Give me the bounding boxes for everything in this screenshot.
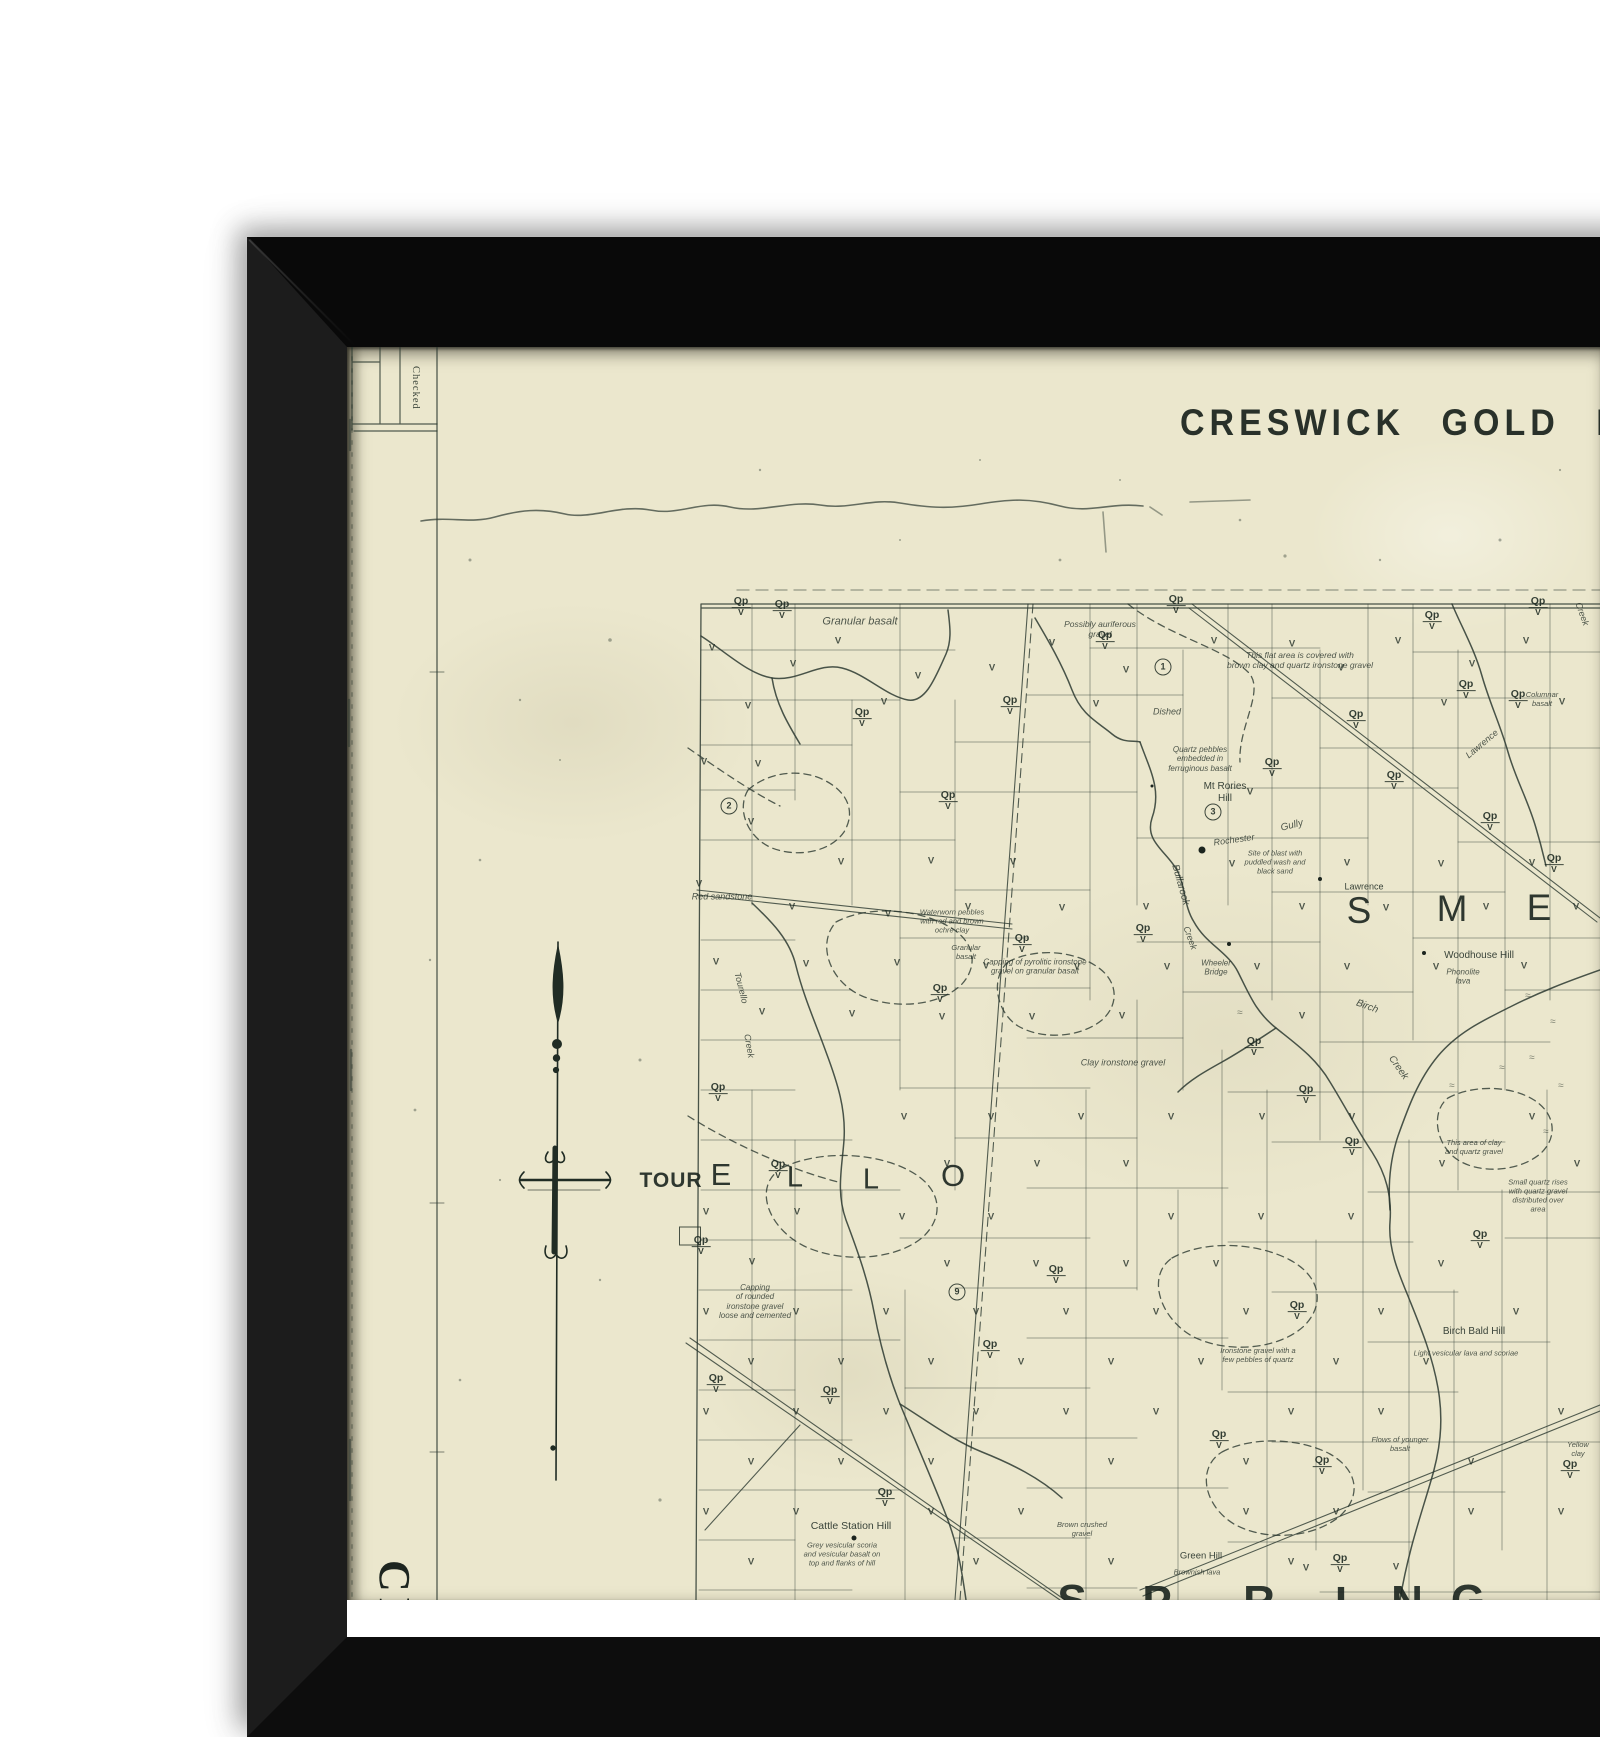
picture-frame bbox=[247, 237, 1600, 1737]
framed-map-photo: { "scene": { "background_color": "#fffff… bbox=[0, 0, 1600, 1600]
